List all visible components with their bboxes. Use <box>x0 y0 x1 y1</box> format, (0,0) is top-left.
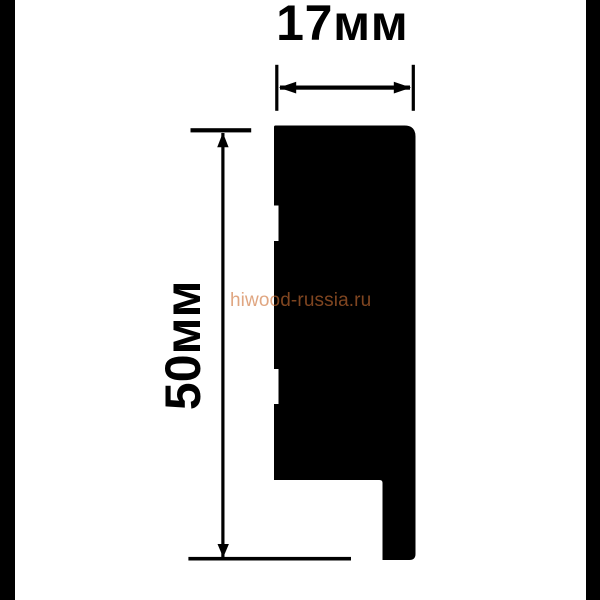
svg-text:17мм: 17мм <box>276 0 408 51</box>
svg-text:hiwood-russia.ru: hiwood-russia.ru <box>230 290 371 311</box>
svg-text:50мм: 50мм <box>155 281 211 411</box>
